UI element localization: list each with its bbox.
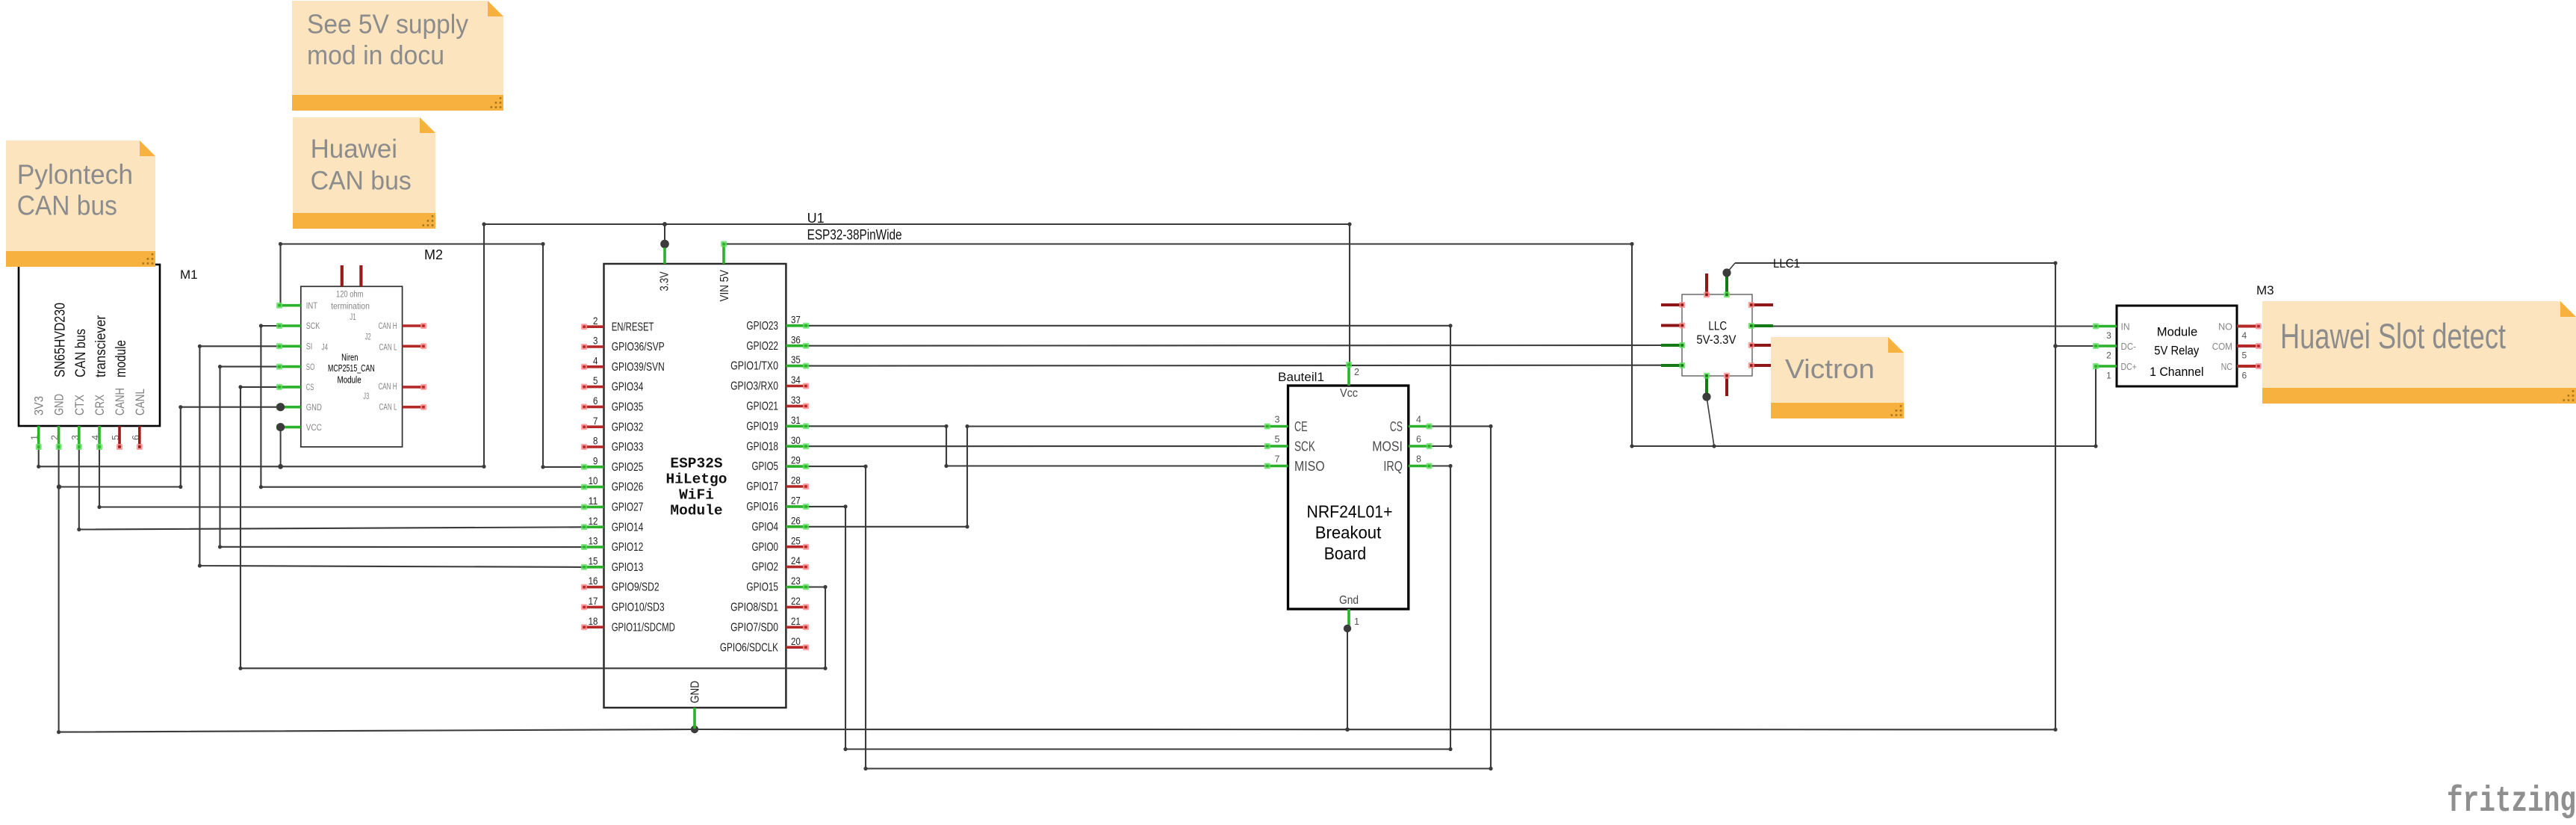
svg-text:7: 7 — [593, 415, 598, 427]
svg-text:GPIO14: GPIO14 — [612, 521, 644, 534]
svg-text:36: 36 — [791, 333, 801, 345]
svg-text:6: 6 — [2242, 371, 2247, 381]
svg-text:5V Relay: 5V Relay — [2154, 343, 2199, 357]
svg-text:3: 3 — [593, 335, 598, 347]
svg-text:CAN H: CAN H — [379, 321, 397, 331]
svg-text:U1: U1 — [807, 211, 825, 226]
svg-text:GPIO15: GPIO15 — [746, 581, 778, 594]
svg-text:IRQ: IRQ — [1383, 458, 1403, 474]
svg-text:SCK: SCK — [1294, 439, 1315, 454]
svg-text:31: 31 — [791, 414, 801, 426]
svg-text:20: 20 — [791, 635, 801, 647]
svg-text:12: 12 — [589, 515, 598, 527]
svg-text:LLC: LLC — [1708, 319, 1727, 333]
svg-text:5V-3.3V: 5V-3.3V — [1696, 333, 1737, 347]
svg-text:GPIO18: GPIO18 — [746, 440, 778, 453]
svg-text:GPIO2: GPIO2 — [752, 561, 779, 574]
svg-text:1 Channel: 1 Channel — [2150, 365, 2203, 379]
svg-text:5: 5 — [1275, 434, 1280, 445]
svg-text:GPIO3/RX0: GPIO3/RX0 — [730, 380, 778, 393]
svg-text:GPIO16: GPIO16 — [746, 501, 778, 513]
svg-text:CE: CE — [1294, 418, 1308, 434]
svg-text:M1: M1 — [180, 268, 198, 282]
svg-text:25: 25 — [791, 534, 801, 546]
svg-text:Niren: Niren — [341, 353, 358, 363]
svg-text:MCP2515_CAN: MCP2515_CAN — [328, 363, 375, 374]
svg-text:GPIO25: GPIO25 — [612, 461, 644, 474]
svg-text:GND: GND — [306, 402, 322, 412]
svg-text:GPIO35: GPIO35 — [612, 401, 644, 414]
svg-text:Module: Module — [338, 375, 361, 386]
svg-text:Huawei: Huawei — [311, 135, 397, 164]
svg-text:GPIO33: GPIO33 — [612, 441, 644, 454]
svg-text:Gnd: Gnd — [1339, 594, 1359, 607]
svg-text:mod in docu: mod in docu — [307, 40, 444, 70]
svg-text:4: 4 — [593, 354, 598, 366]
svg-text:GPIO21: GPIO21 — [746, 401, 778, 413]
svg-text:SI: SI — [306, 342, 313, 352]
svg-text:Victron: Victron — [1785, 353, 1875, 384]
svg-text:CAN L: CAN L — [379, 402, 397, 412]
svg-text:SCK: SCK — [306, 321, 320, 331]
svg-text:EN/RESET: EN/RESET — [612, 321, 654, 333]
svg-text:VCC: VCC — [306, 422, 322, 433]
svg-text:Module: Module — [2157, 324, 2197, 339]
svg-text:LLC1: LLC1 — [1773, 256, 1800, 271]
svg-text:GPIO34: GPIO34 — [612, 381, 644, 394]
svg-text:GPIO4: GPIO4 — [752, 521, 779, 534]
svg-text:11: 11 — [589, 495, 598, 507]
svg-text:6: 6 — [593, 395, 598, 407]
svg-text:24: 24 — [791, 554, 801, 566]
svg-text:J3: J3 — [363, 391, 369, 401]
svg-text:16: 16 — [589, 575, 598, 587]
svg-text:GPIO39/SVN: GPIO39/SVN — [612, 361, 665, 374]
svg-text:SO: SO — [306, 362, 315, 372]
svg-text:CAN bus: CAN bus — [17, 190, 117, 220]
svg-text:CAN bus: CAN bus — [73, 329, 89, 377]
svg-text:GPIO27: GPIO27 — [612, 501, 644, 514]
svg-text:Huawei Slot detect: Huawei Slot detect — [2280, 316, 2506, 356]
svg-text:GND: GND — [53, 394, 66, 415]
svg-text:13: 13 — [589, 535, 598, 547]
svg-text:GPIO19: GPIO19 — [746, 420, 778, 433]
svg-text:fritzing: fritzing — [2447, 782, 2576, 822]
svg-text:J2: J2 — [365, 332, 371, 342]
svg-text:35: 35 — [791, 353, 801, 365]
svg-text:VIN 5V: VIN 5V — [719, 269, 731, 301]
svg-text:transciever: transciever — [93, 315, 109, 377]
svg-text:2: 2 — [2106, 350, 2111, 361]
svg-text:Module: Module — [670, 503, 722, 519]
svg-text:3.3V: 3.3V — [659, 271, 671, 291]
svg-text:GPIO6/SDCLK: GPIO6/SDCLK — [720, 641, 779, 654]
svg-text:Vcc: Vcc — [1340, 387, 1358, 400]
svg-text:Pylontech: Pylontech — [17, 159, 133, 190]
svg-text:NRF24L01+: NRF24L01+ — [1307, 502, 1393, 522]
svg-text:GPIO17: GPIO17 — [746, 481, 778, 493]
svg-text:M2: M2 — [424, 247, 443, 262]
svg-text:MOSI: MOSI — [1372, 439, 1403, 454]
svg-text:NC: NC — [2221, 362, 2232, 372]
svg-text:GPIO0: GPIO0 — [752, 541, 779, 554]
svg-text:INT: INT — [306, 300, 318, 311]
svg-text:GPIO13: GPIO13 — [612, 561, 644, 574]
svg-text:GPIO8/SD1: GPIO8/SD1 — [730, 602, 778, 614]
svg-text:5: 5 — [593, 374, 598, 386]
svg-text:GPIO1/TX0: GPIO1/TX0 — [730, 360, 778, 373]
svg-text:GPIO12: GPIO12 — [612, 541, 644, 554]
svg-text:17: 17 — [589, 595, 598, 607]
svg-text:33: 33 — [791, 394, 801, 406]
svg-text:CRX: CRX — [93, 395, 107, 415]
svg-text:SN65HVD230: SN65HVD230 — [53, 303, 69, 377]
svg-text:3: 3 — [1275, 415, 1280, 425]
svg-text:Board: Board — [1324, 544, 1366, 563]
svg-text:M3: M3 — [2256, 283, 2274, 297]
svg-text:26: 26 — [791, 514, 801, 526]
svg-text:CANL: CANL — [134, 389, 147, 415]
svg-text:GPIO26: GPIO26 — [612, 481, 644, 494]
svg-text:DC+: DC+ — [2121, 362, 2138, 372]
svg-text:WiFi: WiFi — [679, 487, 714, 504]
svg-text:Breakout: Breakout — [1315, 523, 1382, 543]
svg-text:CANH: CANH — [114, 388, 127, 415]
svg-text:CTX: CTX — [73, 395, 87, 415]
svg-text:2: 2 — [593, 315, 598, 327]
svg-text:IN: IN — [2121, 321, 2130, 332]
svg-text:2: 2 — [1354, 367, 1359, 377]
svg-text:COM: COM — [2212, 342, 2232, 352]
svg-text:CAN H: CAN H — [379, 381, 397, 392]
svg-text:29: 29 — [791, 454, 801, 466]
svg-text:GPIO32: GPIO32 — [612, 421, 644, 433]
svg-text:NO: NO — [2218, 322, 2232, 333]
svg-text:GPIO36/SVP: GPIO36/SVP — [612, 341, 665, 353]
svg-text:7: 7 — [1275, 454, 1280, 465]
svg-text:21: 21 — [791, 615, 801, 627]
svg-text:15: 15 — [589, 554, 598, 566]
svg-text:27: 27 — [791, 495, 801, 507]
svg-text:18: 18 — [589, 615, 598, 627]
svg-text:4: 4 — [1416, 415, 1421, 425]
svg-text:120 ohm: 120 ohm — [336, 288, 363, 299]
svg-text:GPIO10/SD3: GPIO10/SD3 — [612, 602, 665, 614]
svg-text:5: 5 — [2242, 350, 2247, 361]
svg-text:1: 1 — [2106, 371, 2111, 381]
svg-text:8: 8 — [593, 435, 598, 447]
svg-text:ESP32-38PinWide: ESP32-38PinWide — [807, 227, 902, 243]
svg-text:J4: J4 — [322, 342, 328, 352]
svg-text:4: 4 — [2242, 330, 2247, 341]
svg-text:HiLetgo: HiLetgo — [666, 472, 727, 488]
svg-text:CAN bus: CAN bus — [311, 167, 412, 196]
svg-text:ESP32S: ESP32S — [670, 456, 723, 472]
svg-text:3V3: 3V3 — [33, 396, 46, 415]
svg-text:CAN L: CAN L — [379, 342, 397, 353]
svg-text:9: 9 — [593, 454, 598, 466]
svg-text:CS: CS — [1390, 418, 1403, 434]
svg-text:34: 34 — [791, 374, 801, 386]
svg-text:28: 28 — [791, 475, 801, 486]
svg-text:See 5V supply: See 5V supply — [307, 8, 469, 39]
svg-text:CS: CS — [306, 382, 314, 392]
svg-text:Bauteil1: Bauteil1 — [1278, 370, 1324, 384]
svg-text:8: 8 — [1416, 454, 1421, 465]
svg-text:J1: J1 — [350, 312, 356, 322]
svg-text:module: module — [114, 340, 129, 377]
svg-text:DC-: DC- — [2121, 342, 2137, 352]
svg-text:GPIO22: GPIO22 — [746, 340, 778, 353]
svg-text:23: 23 — [791, 575, 801, 587]
svg-text:MISO: MISO — [1294, 458, 1325, 474]
svg-text:6: 6 — [1416, 434, 1421, 445]
svg-text:30: 30 — [791, 434, 801, 446]
svg-text:GPIO23: GPIO23 — [746, 320, 778, 333]
svg-text:GND: GND — [689, 681, 702, 703]
svg-text:37: 37 — [791, 313, 801, 325]
svg-text:22: 22 — [791, 595, 801, 607]
svg-text:GPIO9/SD2: GPIO9/SD2 — [612, 581, 659, 594]
svg-text:GPIO7/SD0: GPIO7/SD0 — [730, 621, 778, 634]
svg-text:GPIO11/SDCMD: GPIO11/SDCMD — [612, 621, 675, 634]
svg-text:1: 1 — [1354, 617, 1359, 627]
svg-text:GPIO5: GPIO5 — [752, 460, 779, 473]
svg-text:termination: termination — [331, 301, 370, 312]
svg-text:10: 10 — [589, 475, 598, 486]
svg-text:3: 3 — [2106, 330, 2111, 341]
